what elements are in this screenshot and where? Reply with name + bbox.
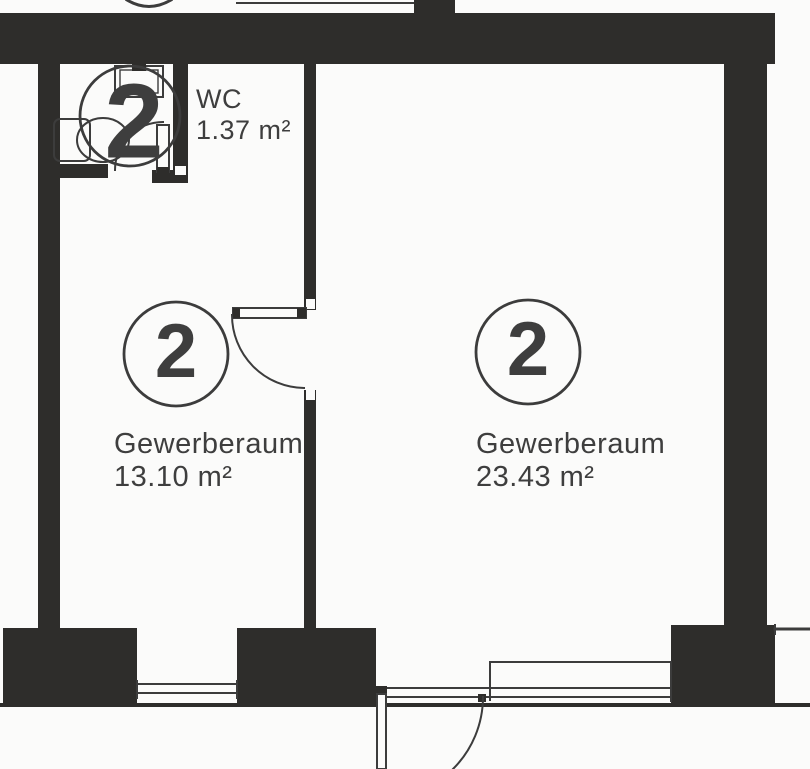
room-partition-wall-lower xyxy=(304,390,316,628)
top-exterior-wall xyxy=(0,13,775,64)
room-door-hinge-cap xyxy=(297,308,306,318)
room-left-area: 13.10 m² xyxy=(114,461,303,494)
wc-label: WC 1.37 m² xyxy=(196,84,291,146)
bottom-left-pier xyxy=(3,628,137,706)
room-door-swing-arc xyxy=(232,315,304,388)
floor-plan-scan: 2 2 2 WC 1.37 m² Gewerberaum 13.10 m² Ge… xyxy=(0,0,810,769)
left-window xyxy=(137,681,237,698)
room-left-label: Gewerberaum 13.10 m² xyxy=(114,428,303,494)
unit-number-room-left: 2 xyxy=(155,308,197,395)
exterior-step-outline xyxy=(490,662,671,700)
exterior-base-line xyxy=(0,703,810,707)
bottom-right-pier xyxy=(671,625,775,704)
partition-jamb-notch-bottom xyxy=(306,390,315,400)
right-sill-band xyxy=(378,684,671,701)
wc-bottom-wall xyxy=(60,164,108,178)
adjacent-wall-stub xyxy=(414,0,455,14)
entrance-door-swing-arc xyxy=(453,697,483,769)
room-door-leaf-end-cap xyxy=(233,308,240,318)
wc-room-name: WC xyxy=(196,84,291,115)
unit-number-room-right: 2 xyxy=(507,306,549,393)
wc-room-area: 1.37 m² xyxy=(196,115,291,146)
room-right-label: Gewerberaum 23.43 m² xyxy=(476,428,665,494)
entrance-door-leaf xyxy=(377,694,386,769)
right-exterior-wall xyxy=(724,64,767,625)
room-right-area: 23.43 m² xyxy=(476,461,665,494)
room-door-leaf xyxy=(233,308,306,318)
left-exterior-wall xyxy=(38,64,60,628)
wc-jamb-notch xyxy=(175,166,186,175)
bottom-middle-pier xyxy=(237,628,376,706)
unit-number-wc: 2 xyxy=(105,62,164,183)
adjacent-unit-circle-fragment xyxy=(127,0,171,7)
room-left-name: Gewerberaum xyxy=(114,428,303,461)
partition-jamb-notch-top xyxy=(306,299,315,309)
room-right-name: Gewerberaum xyxy=(476,428,665,461)
room-partition-wall-upper xyxy=(304,64,316,310)
